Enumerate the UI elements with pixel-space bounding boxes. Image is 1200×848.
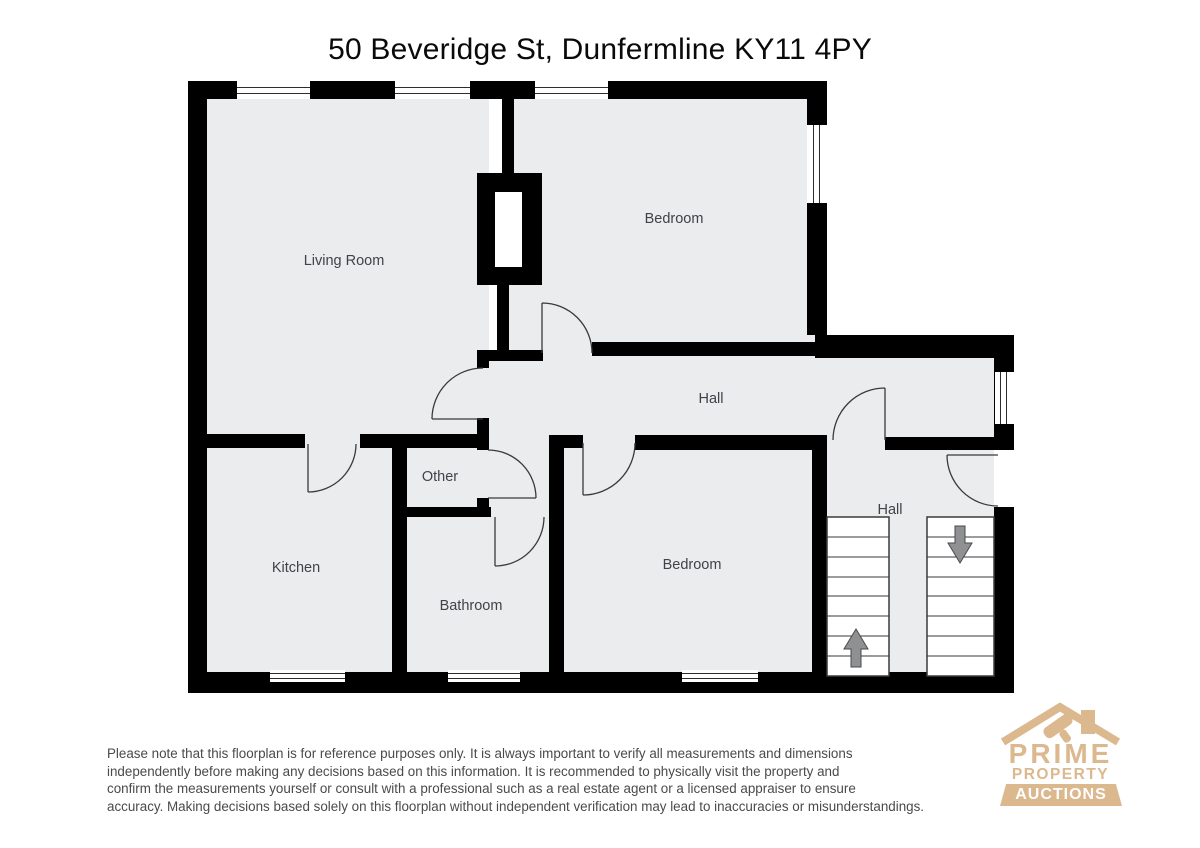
disclaimer-line: accuracy. Making decisions based solely … [107, 798, 924, 816]
wall-segment [470, 81, 535, 99]
window [270, 670, 345, 682]
wall-left-exterior [188, 81, 207, 693]
window [535, 81, 608, 99]
wall-stub [477, 498, 489, 517]
wall-stairhall-left [812, 435, 827, 672]
wall-hall-top [815, 335, 1014, 358]
window [995, 372, 1014, 424]
room-floor-bathroom [395, 505, 558, 685]
wall-segment [885, 437, 994, 450]
room-label-bathroom: Bathroom [440, 598, 503, 614]
logo-text-property: PROPERTY [988, 766, 1133, 784]
window [682, 670, 758, 682]
entrance-opening [994, 450, 1016, 507]
room-label-kitchen: Kitchen [272, 560, 320, 576]
room-label-hall: Hall [699, 391, 724, 407]
wall-segment [477, 350, 543, 361]
disclaimer-line: Please note that this floorplan is for r… [107, 745, 924, 763]
wall-bedroom-bottom [592, 342, 827, 356]
logo-text-auctions: AUCTIONS [1000, 784, 1122, 806]
chimney-flue [495, 192, 522, 267]
room-label-other: Other [422, 469, 458, 485]
disclaimer-line: confirm the measurements yourself or con… [107, 780, 924, 798]
window [448, 670, 520, 682]
wall-kitchen-right [392, 434, 407, 672]
wall-right-exterior [994, 507, 1014, 693]
wall-segment [635, 435, 820, 450]
wall-segment [502, 99, 514, 173]
wall-segment [497, 285, 509, 353]
window [807, 125, 827, 203]
room-floor-stair-hall [812, 435, 1000, 685]
window [237, 81, 310, 99]
wall-stub [477, 418, 489, 450]
floorplan-page: 50 Beveridge St, Dunfermline KY11 4PY [0, 0, 1200, 848]
wall-segment [188, 81, 237, 99]
wall-segment [360, 434, 488, 448]
wall-segment [310, 81, 395, 99]
wall-segment [188, 434, 305, 448]
room-label-bedroom-top: Bedroom [645, 211, 704, 227]
wall-top-exterior [608, 81, 827, 99]
disclaimer-text: Please note that this floorplan is for r… [107, 745, 924, 815]
room-label-bedroom-bottom: Bedroom [663, 557, 722, 573]
disclaimer-line: independently before making any decision… [107, 763, 924, 781]
room-label-living-room: Living Room [304, 253, 385, 269]
wall-bedroom-left [549, 435, 564, 672]
window [395, 81, 470, 99]
prime-property-auctions-logo: PRIME PROPERTY AUCTIONS [988, 698, 1133, 814]
room-label-hall-lower: Hall [878, 502, 903, 518]
page-title: 50 Beveridge St, Dunfermline KY11 4PY [0, 33, 1200, 67]
